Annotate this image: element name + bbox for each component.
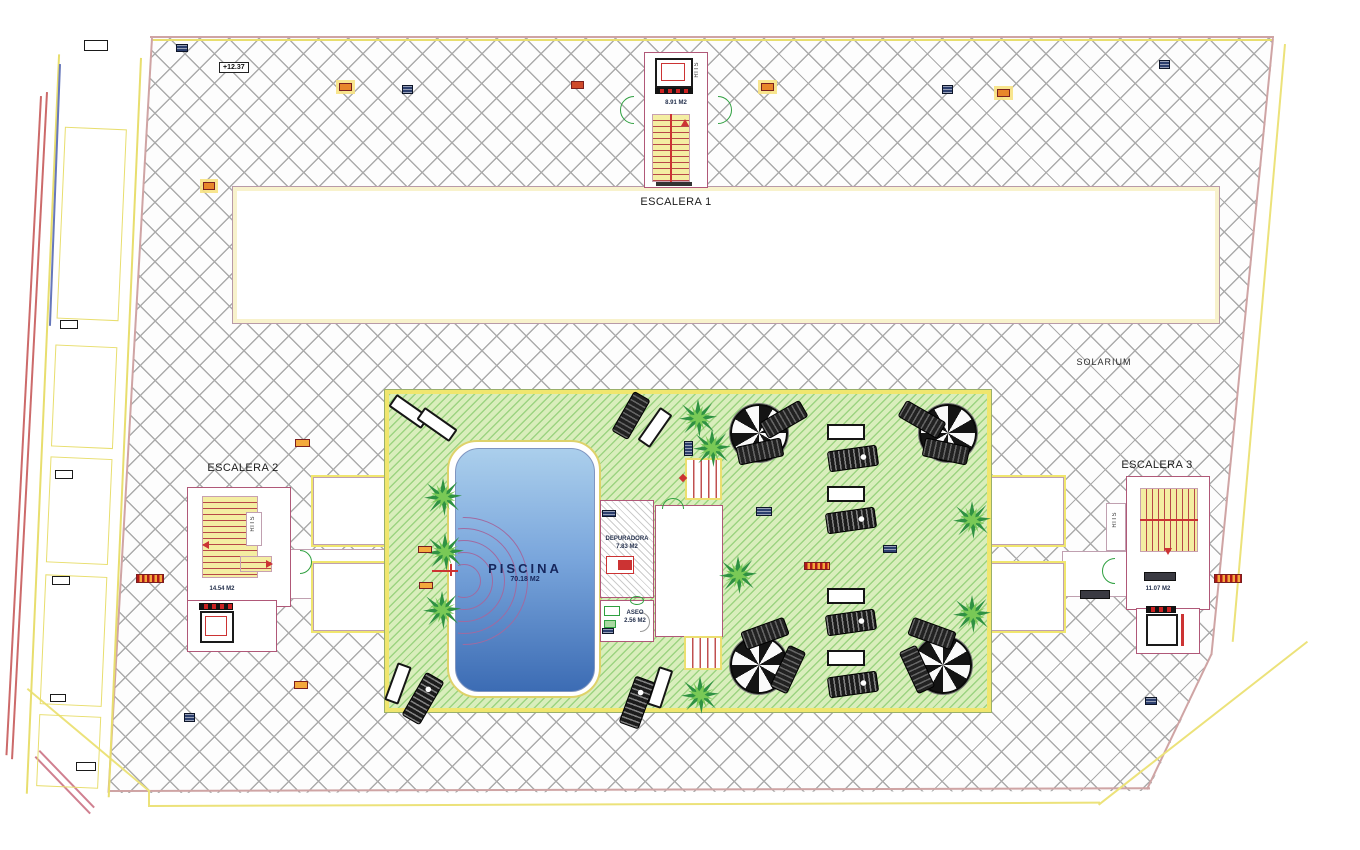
stairwell-1-elevator-car	[661, 63, 685, 81]
lower-roof-outline-sw2	[148, 790, 150, 807]
facade-marker	[52, 576, 70, 585]
facade-marker	[55, 470, 73, 479]
marker-chip	[602, 628, 614, 634]
roof-edge-top	[150, 36, 1274, 38]
depuradora-area: 7.83 M2	[616, 544, 638, 550]
marker-chip	[1159, 60, 1170, 69]
facade-panel	[51, 344, 117, 449]
facade-marker	[60, 320, 78, 329]
facade-marker	[76, 762, 96, 771]
deck-table	[827, 588, 865, 604]
marker-chip	[761, 83, 774, 91]
marker-chip	[1145, 697, 1157, 705]
marker-chip-long	[136, 574, 164, 583]
deck-stairs-lower	[684, 636, 722, 670]
aseo-fixture	[604, 620, 616, 628]
stairwell-3-elevator-door	[1146, 606, 1176, 613]
facade-marker	[50, 694, 66, 702]
stairwell-2-title: ESCALERA 2	[183, 462, 303, 474]
palm-tree-icon	[953, 595, 991, 633]
marker-chip	[684, 441, 693, 456]
stairwell-2-area: 14.54 M2	[192, 586, 252, 594]
palm-tree-icon	[681, 676, 719, 714]
stairwell-1-stair-rail	[670, 114, 672, 182]
aseo-area: 2.56 M2	[624, 618, 646, 624]
aseo-label: ASEO 2.56 M2	[616, 610, 654, 625]
stairwell-3-rits-label: RITS	[1112, 512, 1118, 528]
lower-roof-outline-bottom	[150, 802, 1100, 807]
floor-plan-canvas: RITS 8.91 M2 ESCALERA 1 RITS 14.54 M2 ES…	[0, 0, 1360, 850]
deck-table	[827, 486, 865, 502]
marker-chip	[418, 546, 432, 553]
central-core-room	[655, 505, 723, 637]
stairwell-2-elevator-door	[199, 603, 233, 610]
marker-chip	[402, 85, 413, 94]
stairwell-1-elevator-door	[655, 88, 693, 94]
marker-chip-long	[804, 562, 830, 570]
pool-area: 70.18 M2	[456, 576, 594, 583]
stairwell-3-title: ESCALERA 3	[1097, 459, 1217, 471]
level-marker: +12.37	[219, 62, 249, 73]
palm-tree-icon	[953, 501, 991, 539]
rooflight-west-2	[313, 563, 389, 631]
swimming-pool: PISCINA 70.18 M2	[455, 448, 595, 692]
roof-edge-top-yellow	[152, 39, 1272, 41]
stairwell-1-rits-label: RITS	[694, 62, 700, 78]
facade-marker	[84, 40, 108, 51]
stairwell-3-red-line	[1181, 614, 1184, 646]
stairwell-1-threshold	[656, 182, 692, 186]
stairwell-1-title: ESCALERA 1	[616, 196, 736, 208]
marker-chip	[176, 44, 188, 52]
pool-name: PISCINA	[456, 561, 594, 576]
marker-chip	[184, 713, 195, 722]
pool-surround: PISCINA 70.18 M2	[447, 440, 601, 698]
rooflight-west-1	[313, 477, 389, 545]
rooflight-east-1	[990, 477, 1064, 545]
stairwell-1-area: 8.91 M2	[646, 100, 706, 108]
deck-table	[827, 650, 865, 666]
solarium-label: SOLARIUM	[1042, 357, 1166, 367]
stairwell-3-highlight-badge	[1144, 572, 1176, 581]
palm-tree-icon	[424, 478, 462, 516]
stairwell-3-stair-rail	[1140, 519, 1198, 521]
marker-chip	[942, 85, 953, 94]
facade-panel	[40, 574, 108, 707]
pool-label-group: PISCINA 70.18 M2	[456, 561, 594, 583]
stair-direction-arrow	[202, 541, 209, 549]
facade-panel	[57, 127, 127, 322]
marker-chip-long	[1214, 574, 1242, 583]
deck-table	[827, 424, 865, 440]
aseo-name: ASEO	[626, 610, 643, 616]
depuradora-name: DEPURADORA	[605, 536, 648, 542]
stairwell-2-elevator-car	[205, 616, 227, 636]
highlight-badge	[1080, 590, 1110, 599]
palm-tree-icon	[693, 429, 731, 467]
marker-chip	[294, 681, 308, 689]
marker-chip	[602, 510, 616, 517]
marker-chip	[295, 439, 310, 447]
marker-chip	[571, 81, 584, 89]
palm-tree-icon	[719, 556, 757, 594]
stair-direction-arrow	[681, 119, 689, 126]
aseo-toilet	[630, 596, 644, 605]
palm-tree-icon	[423, 591, 461, 629]
marker-chip	[339, 83, 352, 91]
stairwell-2-rits-label: RITS	[250, 516, 256, 532]
rooflight-east-2	[990, 563, 1064, 631]
pump-equipment-body	[618, 560, 632, 570]
depuradora-label: DEPURADORA 7.83 M2	[600, 536, 654, 551]
stair-direction-arrow	[266, 560, 273, 568]
marker-chip	[883, 545, 897, 553]
stairwell-3-area: 11.07 M2	[1128, 586, 1188, 594]
stair-direction-arrow	[1164, 548, 1172, 555]
marker-chip	[997, 89, 1010, 97]
marker-chip	[419, 582, 433, 589]
stairwell-3-elevator	[1146, 614, 1178, 646]
marker-chip	[203, 182, 215, 190]
facade-panel	[36, 714, 101, 789]
marker-chip	[756, 507, 772, 516]
